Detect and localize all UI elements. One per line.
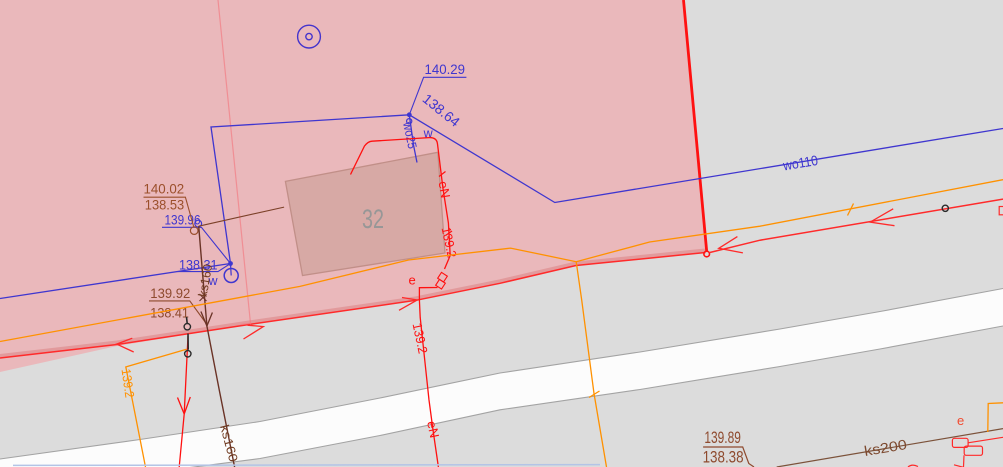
svg-text:e: e <box>957 413 964 428</box>
svg-text:138.38: 138.38 <box>703 448 744 467</box>
svg-text:eN: eN <box>436 180 454 199</box>
svg-text:140.02: 140.02 <box>144 181 185 197</box>
svg-text:e: e <box>409 273 416 288</box>
svg-text:138.53: 138.53 <box>145 197 185 213</box>
svg-text:140.29: 140.29 <box>425 61 466 77</box>
svg-text:139.92: 139.92 <box>150 285 190 301</box>
svg-text:32: 32 <box>362 204 384 234</box>
svg-text:139.89: 139.89 <box>704 428 741 447</box>
